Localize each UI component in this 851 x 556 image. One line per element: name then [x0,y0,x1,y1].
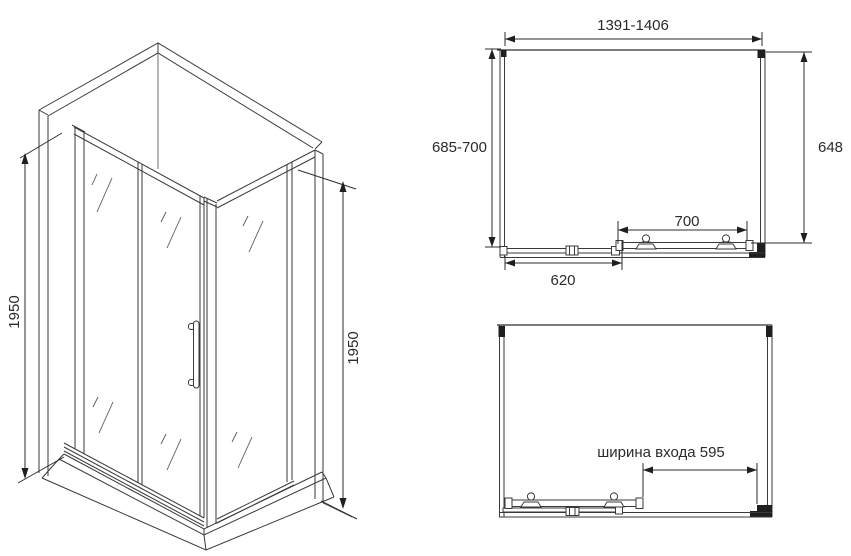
plan-open-track [499,513,772,518]
dim-fixed-panel-label: 620 [550,272,575,289]
top-frame [39,43,322,169]
glass-shine-icon [92,174,263,470]
roller-icon [716,235,736,249]
technical-drawing-page: 1950 1950 [0,0,851,556]
plan-view-closed: 1391-1406 685-700 648 700 [432,17,843,289]
shower-tray [42,454,334,550]
glass-clamp-icon [566,246,578,255]
plan-open-walls [497,325,773,517]
dim-overall-width: 1391-1406 [505,17,762,46]
bottom-track [64,443,294,526]
plan-open-sliding-door [505,493,643,509]
plan-closed-sliding-door [616,235,753,251]
entrance-width-label: ширина входа 595 [597,444,725,461]
dim-overall-width-label: 1391-1406 [597,17,669,34]
plan-closed-walls [497,50,765,257]
front-door-wall [72,125,204,518]
dim-depth-label: 685-700 [432,139,487,156]
side-panel [217,150,352,517]
dim-height-right: 1950 [298,170,362,519]
dim-height-left-label: 1950 [6,295,23,328]
technical-drawing: 1950 1950 [0,0,851,556]
plan-view-open: ширина входа 595 [497,325,773,517]
dim-height-right-label: 1950 [345,331,362,364]
isometric-view: 1950 1950 [6,43,362,550]
plan-closed-fixed-panel [500,246,620,255]
roller-icon [636,235,656,249]
plan-closed-track [500,253,765,258]
dim-entrance-width: ширина входа 595 [597,444,757,504]
door-handle [189,321,200,388]
glass-clamp-icon [566,508,579,516]
left-wall-profile [39,110,48,476]
corner-post [204,197,217,528]
dim-side-panel-label: 648 [818,139,843,156]
dim-door-width-label: 700 [674,213,699,230]
dim-depth: 685-700 [432,49,501,247]
dim-height-left: 1950 [6,133,64,483]
